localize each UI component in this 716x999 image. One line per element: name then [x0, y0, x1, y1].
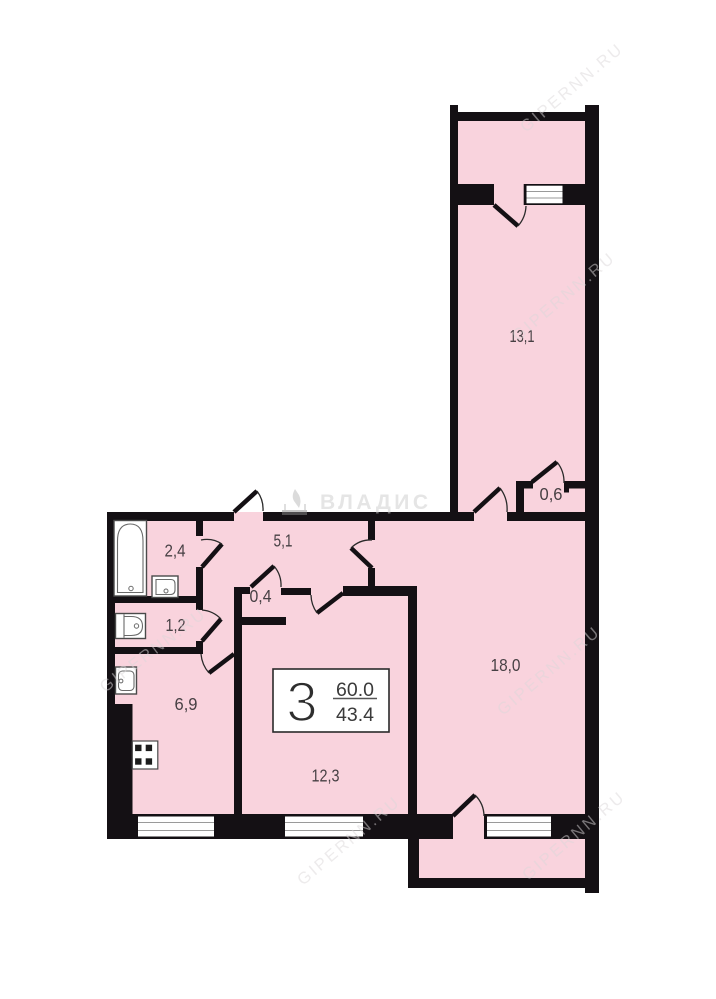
svg-text:6,9: 6,9 [175, 694, 198, 714]
svg-text:12,3: 12,3 [312, 766, 340, 786]
svg-text:3: 3 [286, 670, 317, 733]
svg-text:18,0: 18,0 [491, 655, 521, 675]
svg-text:2,4: 2,4 [165, 541, 186, 561]
svg-text:43.4: 43.4 [336, 704, 374, 726]
svg-text:ВЛАДИС: ВЛАДИС [320, 491, 432, 514]
svg-text:0,4: 0,4 [250, 586, 272, 606]
svg-text:5,1: 5,1 [274, 531, 293, 551]
svg-text:60.0: 60.0 [336, 679, 374, 701]
svg-text:0,6: 0,6 [540, 484, 563, 504]
